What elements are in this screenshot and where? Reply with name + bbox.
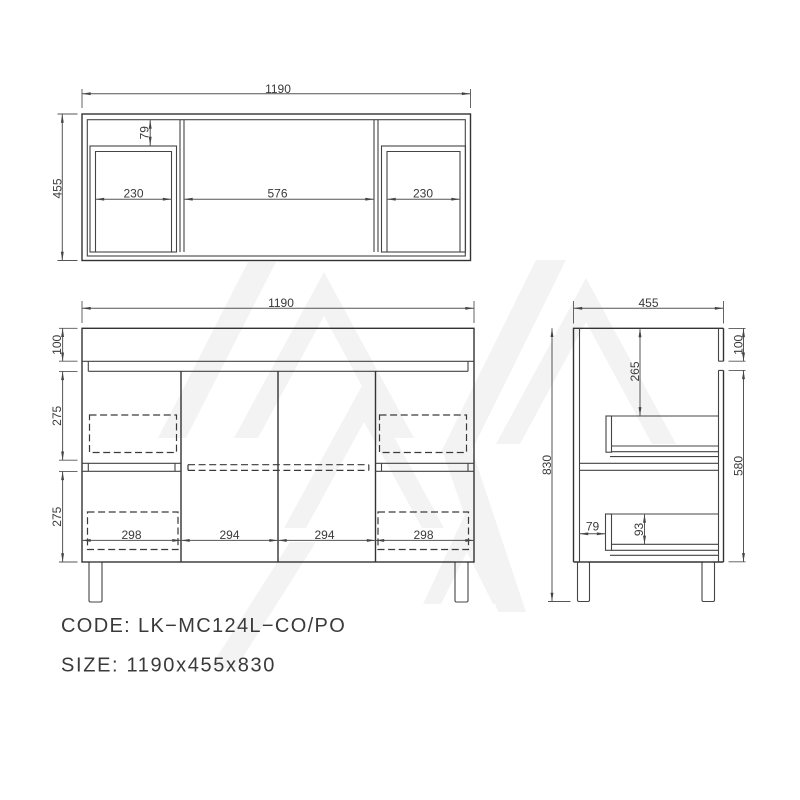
svg-text:298: 298 bbox=[413, 528, 433, 542]
svg-text:580: 580 bbox=[732, 456, 746, 476]
svg-text:265: 265 bbox=[628, 361, 642, 381]
svg-text:830: 830 bbox=[540, 455, 554, 475]
svg-text:79: 79 bbox=[137, 126, 151, 140]
svg-text:SIZE: 1190x455x830: SIZE: 1190x455x830 bbox=[61, 655, 276, 677]
svg-text:455: 455 bbox=[50, 178, 64, 198]
svg-text:294: 294 bbox=[219, 528, 239, 542]
svg-text:230: 230 bbox=[413, 187, 433, 201]
svg-text:298: 298 bbox=[121, 528, 141, 542]
svg-text:100: 100 bbox=[50, 334, 64, 354]
svg-text:230: 230 bbox=[123, 187, 143, 201]
svg-text:93: 93 bbox=[632, 523, 646, 537]
svg-text:1190: 1190 bbox=[265, 82, 291, 96]
svg-text:294: 294 bbox=[314, 528, 334, 542]
svg-text:79: 79 bbox=[586, 520, 600, 534]
svg-text:455: 455 bbox=[638, 296, 658, 310]
svg-text:1190: 1190 bbox=[268, 296, 294, 310]
svg-text:576: 576 bbox=[267, 187, 287, 201]
svg-text:275: 275 bbox=[50, 506, 64, 526]
svg-text:100: 100 bbox=[732, 334, 746, 354]
svg-text:CODE: LK−MC124L−CO/PO: CODE: LK−MC124L−CO/PO bbox=[61, 615, 346, 637]
svg-text:275: 275 bbox=[50, 405, 64, 425]
